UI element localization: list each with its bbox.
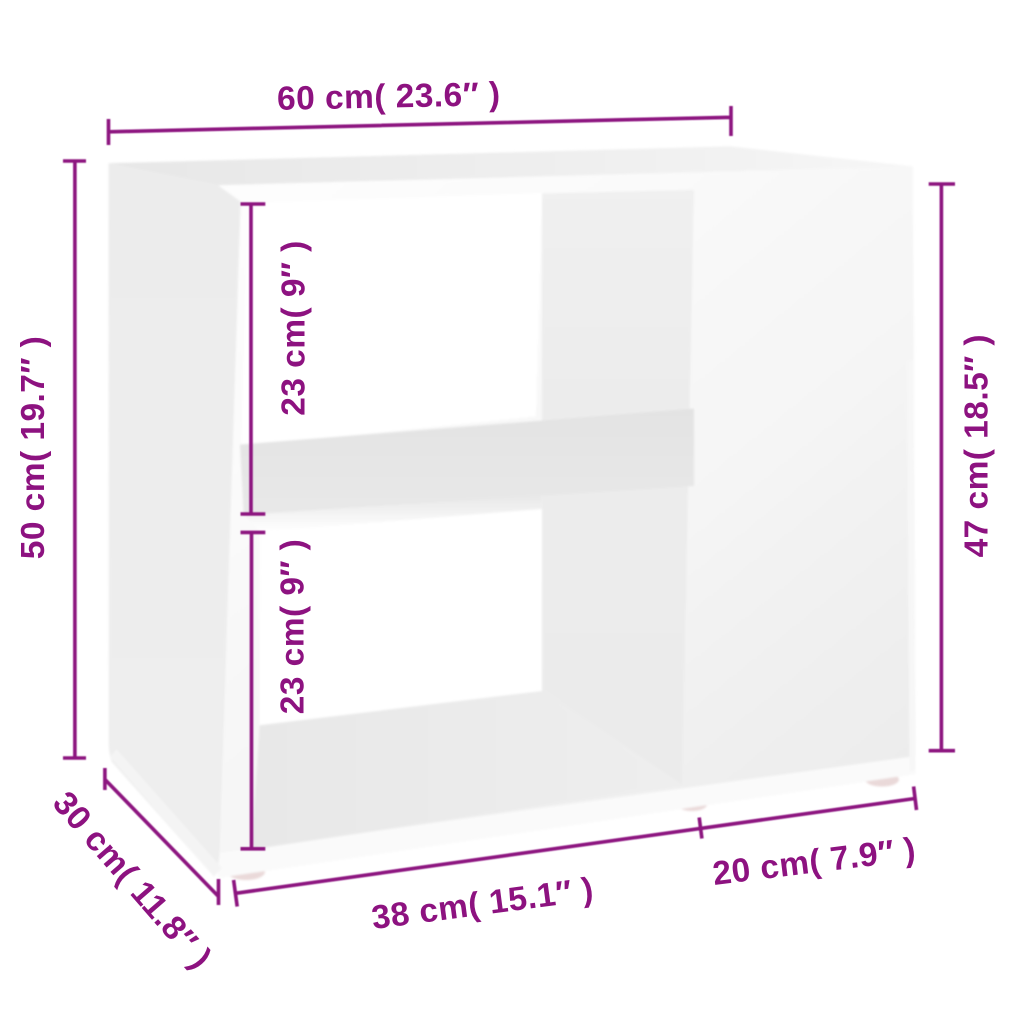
- svg-text:50 cm( 19.7″ ): 50 cm( 19.7″ ): [15, 336, 52, 559]
- svg-text:23 cm( 9″ ): 23 cm( 9″ ): [275, 539, 312, 715]
- svg-text:47 cm( 18.5″ ): 47 cm( 18.5″ ): [959, 334, 996, 557]
- svg-text:23 cm( 9″ ): 23 cm( 9″ ): [276, 240, 313, 416]
- svg-text:60 cm( 23.6″ ): 60 cm( 23.6″ ): [277, 76, 501, 118]
